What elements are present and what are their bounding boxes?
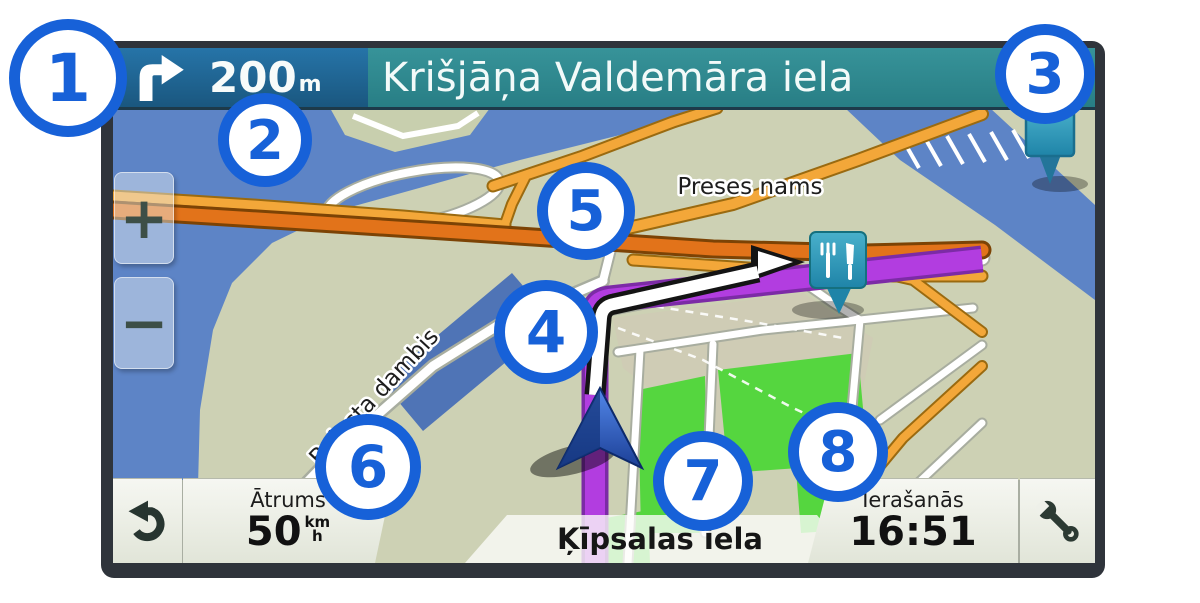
distance-value: 200 <box>209 57 297 99</box>
current-street-strip[interactable]: Ķīpsalas iela <box>465 515 855 563</box>
callout-3: 3 <box>995 24 1095 124</box>
next-street-sign[interactable]: Krišjāņa Valdemāra iela <box>368 48 1095 107</box>
minus-icon: − <box>120 294 169 352</box>
speed-unit-h: h <box>312 529 323 543</box>
speed-value: 50 km h <box>246 511 330 553</box>
arrival-time: 16:51 <box>849 511 976 553</box>
callout-3-number: 3 <box>1026 42 1065 107</box>
arrival-label: Ierašanās <box>862 489 964 511</box>
distance-unit: m <box>299 72 322 97</box>
callout-2: 2 <box>218 93 312 187</box>
next-street-name: Krišjāņa Valdemāra iela <box>382 55 853 101</box>
callout-8: 8 <box>788 402 888 502</box>
maneuver-panel[interactable]: 200 m <box>113 48 368 107</box>
speed-label: Ātrums <box>250 489 326 511</box>
zoom-out-button[interactable]: − <box>114 277 174 369</box>
knife-blade <box>846 243 854 264</box>
callout-6: 6 <box>315 414 421 520</box>
callout-7: 7 <box>653 431 753 531</box>
callout-6-number: 6 <box>348 433 388 501</box>
callout-5-number: 5 <box>567 179 606 244</box>
callout-8-number: 8 <box>819 420 858 485</box>
back-button[interactable] <box>113 478 182 563</box>
current-street-name: Ķīpsalas iela <box>557 522 763 556</box>
callout-1-number: 1 <box>45 40 91 117</box>
zoom-in-button[interactable]: + <box>114 172 174 264</box>
callout-1: 1 <box>9 19 127 137</box>
speed-number: 50 <box>246 511 302 553</box>
map-label-area: Preses nams <box>677 174 822 200</box>
tools-button[interactable] <box>1020 478 1095 563</box>
back-arrow-icon <box>125 498 171 544</box>
plus-icon: + <box>120 189 169 247</box>
speed-unit: km h <box>305 515 331 544</box>
callout-2-number: 2 <box>246 109 284 172</box>
callout-4-number: 4 <box>526 298 566 366</box>
wrench-icon <box>1036 499 1080 543</box>
turn-right-icon <box>129 55 187 101</box>
callout-4: 4 <box>494 280 598 384</box>
callout-7-number: 7 <box>684 449 723 514</box>
callout-5: 5 <box>537 162 635 260</box>
